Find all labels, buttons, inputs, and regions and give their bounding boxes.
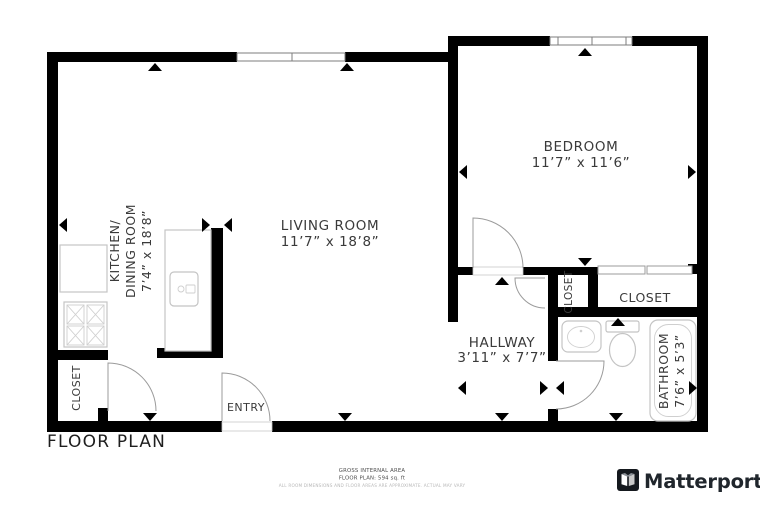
hall-closet-label: CLOSET: [563, 270, 575, 313]
wall-marker-icon: [540, 381, 548, 395]
wall-entry-closet-stub: [98, 408, 108, 421]
wall-marker-icon: [578, 48, 592, 56]
bathroom-dims: 7’6” x 5’3”: [672, 334, 687, 408]
bedroom-dims: 11’7” x 11’6”: [532, 155, 630, 171]
wall-marker-icon: [458, 381, 466, 395]
footer: GROSS INTERNAL AREA FLOOR PLAN: 594 sq. …: [279, 468, 466, 488]
wall-bottom-right: [272, 421, 708, 432]
kitchen-island: [165, 230, 211, 351]
wall-bedroom-top-left: [448, 36, 550, 46]
bedroom-closet-label: CLOSET: [619, 290, 671, 305]
bedroom-window: [550, 37, 632, 45]
wall-bottom-left: [47, 421, 222, 432]
hallway-dims: 3’11” x 7’7”: [457, 350, 546, 366]
bedroom-label: BEDROOM: [544, 139, 619, 155]
wall-marker-icon: [495, 277, 509, 285]
bathroom-sink: [562, 321, 601, 352]
wall-bedroom-left: [448, 36, 458, 268]
wall-marker-icon: [340, 63, 354, 71]
living-room-window: [237, 53, 345, 61]
wall-entry-closet-top: [58, 350, 108, 360]
wall-hall-right-lower: [548, 409, 558, 421]
bedroom-door-swing: [473, 218, 523, 268]
wall-left: [47, 52, 58, 432]
wall-bedroom-bottom-b: [523, 267, 598, 275]
kitchen-dims: 7’4” x 18’8”: [139, 210, 154, 292]
wall-marker-icon: [148, 63, 162, 71]
wall-top-left: [47, 52, 237, 62]
refrigerator: [60, 245, 107, 292]
wall-kitchen-island: [211, 228, 223, 353]
wall-marker-icon: [578, 258, 592, 266]
wall-bedroom-top-right: [632, 36, 708, 46]
bedroom-closet-sliding-door: [598, 266, 645, 274]
hall-closet-door-swing: [515, 278, 545, 308]
wall-marker-icon: [224, 218, 232, 232]
kitchen-label-line1: KITCHEN/: [107, 220, 122, 283]
entry-closet-door-swing: [108, 363, 156, 411]
stove: [64, 302, 107, 347]
wall-marker-icon: [459, 165, 467, 179]
wall-hall-right-upper: [548, 267, 558, 361]
wall-marker-icon: [143, 413, 157, 421]
wall-marker-icon: [609, 413, 623, 421]
entry-label: ENTRY: [227, 401, 265, 414]
living-room-label: LIVING ROOM: [281, 218, 379, 234]
toilet: [606, 321, 639, 367]
fixtures: [60, 230, 696, 421]
entry-closet-label: CLOSET: [70, 365, 83, 411]
kitchen-label-line2: DINING ROOM: [123, 204, 138, 298]
gross-internal-area-label: GROSS INTERNAL AREA: [339, 468, 406, 474]
wall-right: [697, 36, 708, 432]
bathroom-label: BATHROOM: [656, 333, 671, 409]
floor-plan-canvas: LIVING ROOM 11’7” x 18’8” BEDROOM 11’7” …: [0, 0, 760, 505]
wall-marker-icon: [688, 165, 696, 179]
matterport-icon: [617, 469, 639, 491]
bedroom-door-threshold: [473, 267, 523, 275]
wall-top-mid: [345, 52, 448, 62]
entry-door-threshold: [222, 422, 272, 431]
wall-hall-left-stub: [448, 275, 458, 322]
wall-marker-icon: [59, 218, 67, 232]
matterport-logo: Matterport: [617, 469, 760, 493]
living-room-dims: 11’7” x 18’8”: [281, 234, 379, 250]
wall-bedroom-bottom-a: [448, 267, 473, 275]
wall-marker-icon: [338, 413, 352, 421]
hallway-label: HALLWAY: [469, 335, 536, 351]
wall-marker-icon: [495, 413, 509, 421]
disclaimer-text: ALL ROOM DIMENSIONS AND FLOOR AREAS ARE …: [279, 483, 466, 488]
floor-plan-area-value: FLOOR PLAN: 594 sq. ft: [339, 476, 405, 482]
wall-marker-icon: [556, 381, 564, 395]
matterport-wordmark: Matterport: [644, 470, 760, 493]
page-title: FLOOR PLAN: [47, 432, 166, 452]
bedroom-closet-sliding-door: [647, 266, 692, 274]
